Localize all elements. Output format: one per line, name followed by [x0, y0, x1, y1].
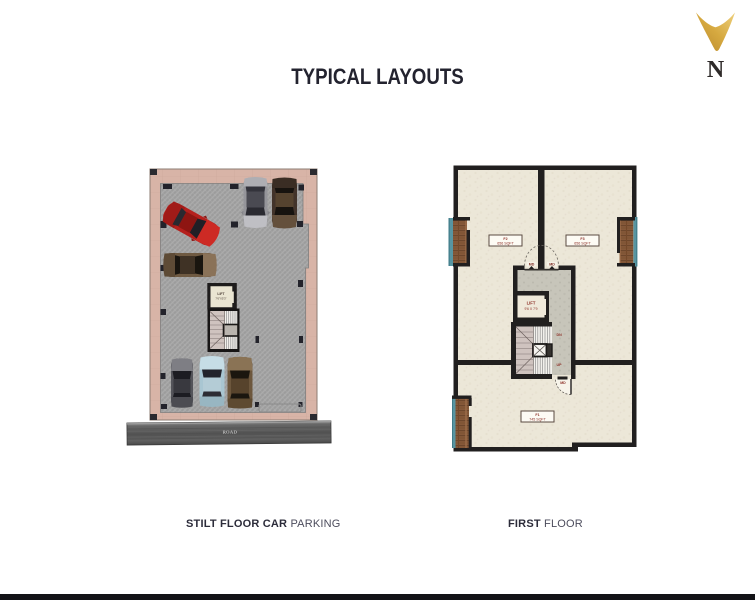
svg-text:LIFT: LIFT — [527, 301, 536, 306]
svg-text:7'6"X5'3": 7'6"X5'3" — [215, 297, 226, 301]
svg-text:MD: MD — [560, 381, 566, 385]
svg-text:745 SQFT: 745 SQFT — [529, 417, 546, 421]
svg-text:ROAD: ROAD — [223, 429, 238, 434]
svg-text:N: N — [707, 57, 725, 83]
svg-text:UP: UP — [557, 363, 563, 367]
svg-text:656 SQFT: 656 SQFT — [574, 241, 591, 245]
svg-text:656 SQFT: 656 SQFT — [497, 241, 514, 245]
svg-text:F2: F2 — [503, 237, 507, 241]
svg-text:F1: F1 — [535, 413, 539, 417]
svg-text:DN: DN — [557, 333, 563, 337]
svg-text:MD: MD — [549, 263, 555, 267]
svg-text:MD: MD — [529, 263, 535, 267]
svg-text:F3: F3 — [580, 237, 584, 241]
svg-text:9'6 X 7'9: 9'6 X 7'9 — [525, 307, 538, 311]
svg-text:LIFT: LIFT — [217, 292, 225, 296]
